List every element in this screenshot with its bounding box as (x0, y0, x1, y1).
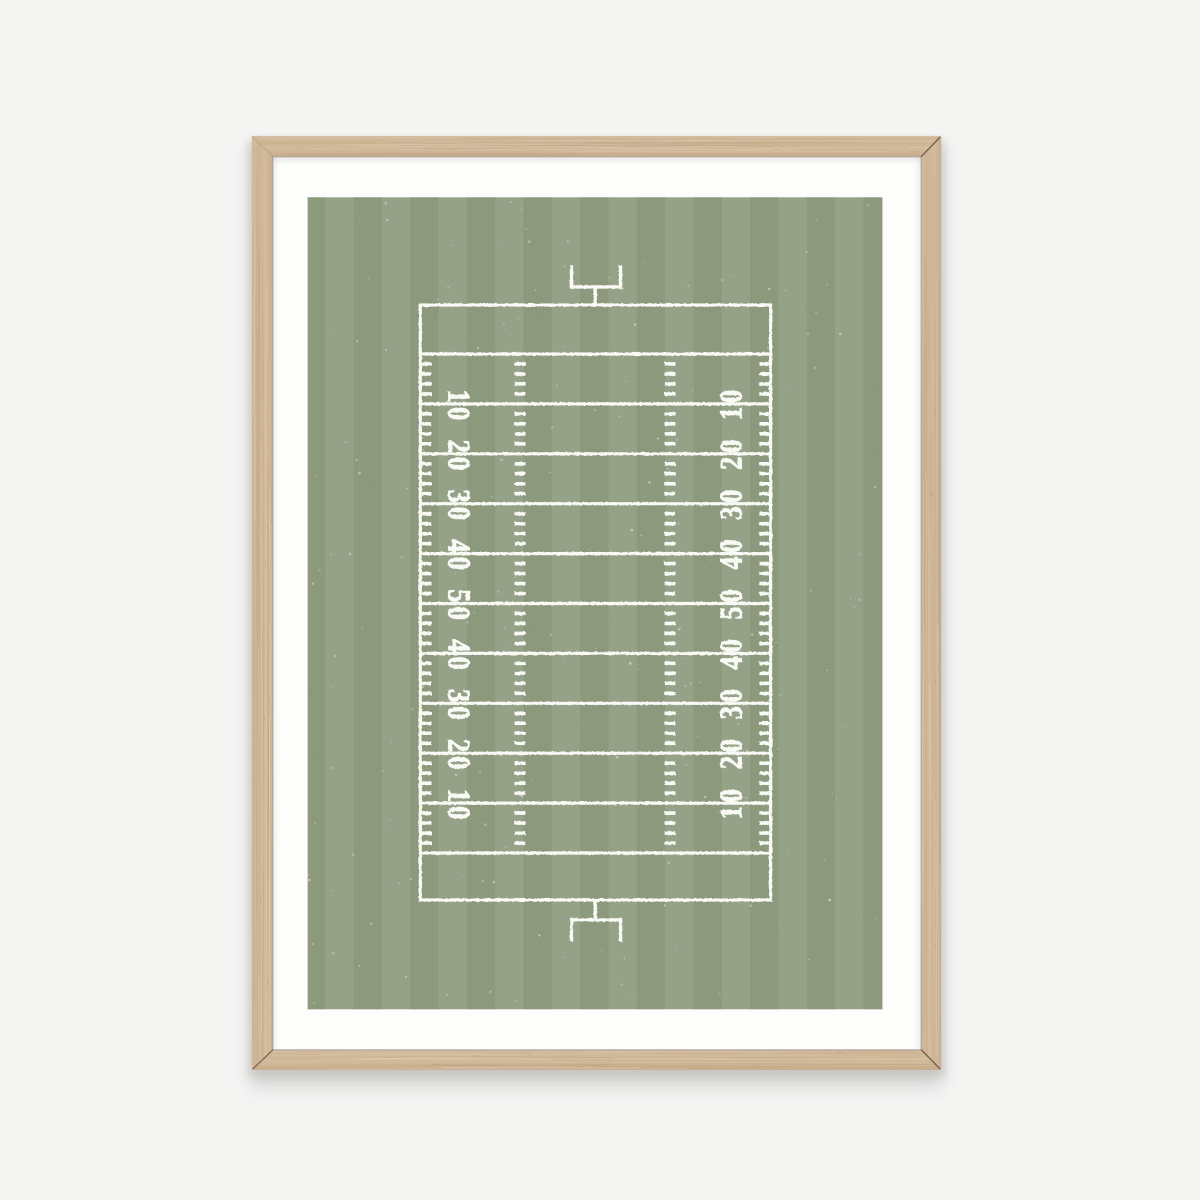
svg-text:5: 5 (441, 589, 476, 602)
svg-text:0: 0 (441, 557, 476, 570)
svg-text:1: 1 (714, 806, 749, 819)
svg-text:1: 1 (441, 390, 476, 403)
svg-text:0: 0 (441, 407, 476, 420)
svg-text:1: 1 (441, 789, 476, 802)
svg-text:3: 3 (714, 706, 749, 719)
svg-text:0: 0 (714, 689, 749, 702)
svg-text:0: 0 (441, 756, 476, 769)
svg-text:0: 0 (714, 589, 749, 602)
svg-text:2: 2 (441, 739, 476, 752)
svg-text:3: 3 (441, 489, 476, 502)
svg-text:2: 2 (441, 440, 476, 453)
svg-text:0: 0 (714, 490, 749, 503)
svg-text:1: 1 (714, 407, 749, 420)
svg-text:0: 0 (714, 789, 749, 802)
svg-text:0: 0 (714, 539, 749, 552)
svg-text:3: 3 (441, 689, 476, 702)
svg-text:0: 0 (441, 607, 476, 620)
svg-text:4: 4 (714, 656, 749, 669)
svg-text:0: 0 (441, 507, 476, 520)
svg-text:0: 0 (441, 806, 476, 819)
svg-text:3: 3 (714, 507, 749, 520)
svg-text:4: 4 (441, 539, 476, 552)
svg-text:2: 2 (714, 457, 749, 470)
svg-text:4: 4 (714, 556, 749, 569)
svg-text:0: 0 (714, 440, 749, 453)
svg-text:5: 5 (714, 606, 749, 619)
svg-text:0: 0 (441, 457, 476, 470)
svg-text:0: 0 (714, 390, 749, 403)
svg-text:0: 0 (441, 656, 476, 669)
svg-text:0: 0 (441, 706, 476, 719)
svg-text:4: 4 (441, 639, 476, 652)
svg-text:0: 0 (714, 739, 749, 752)
svg-text:0: 0 (714, 639, 749, 652)
svg-text:2: 2 (714, 756, 749, 769)
